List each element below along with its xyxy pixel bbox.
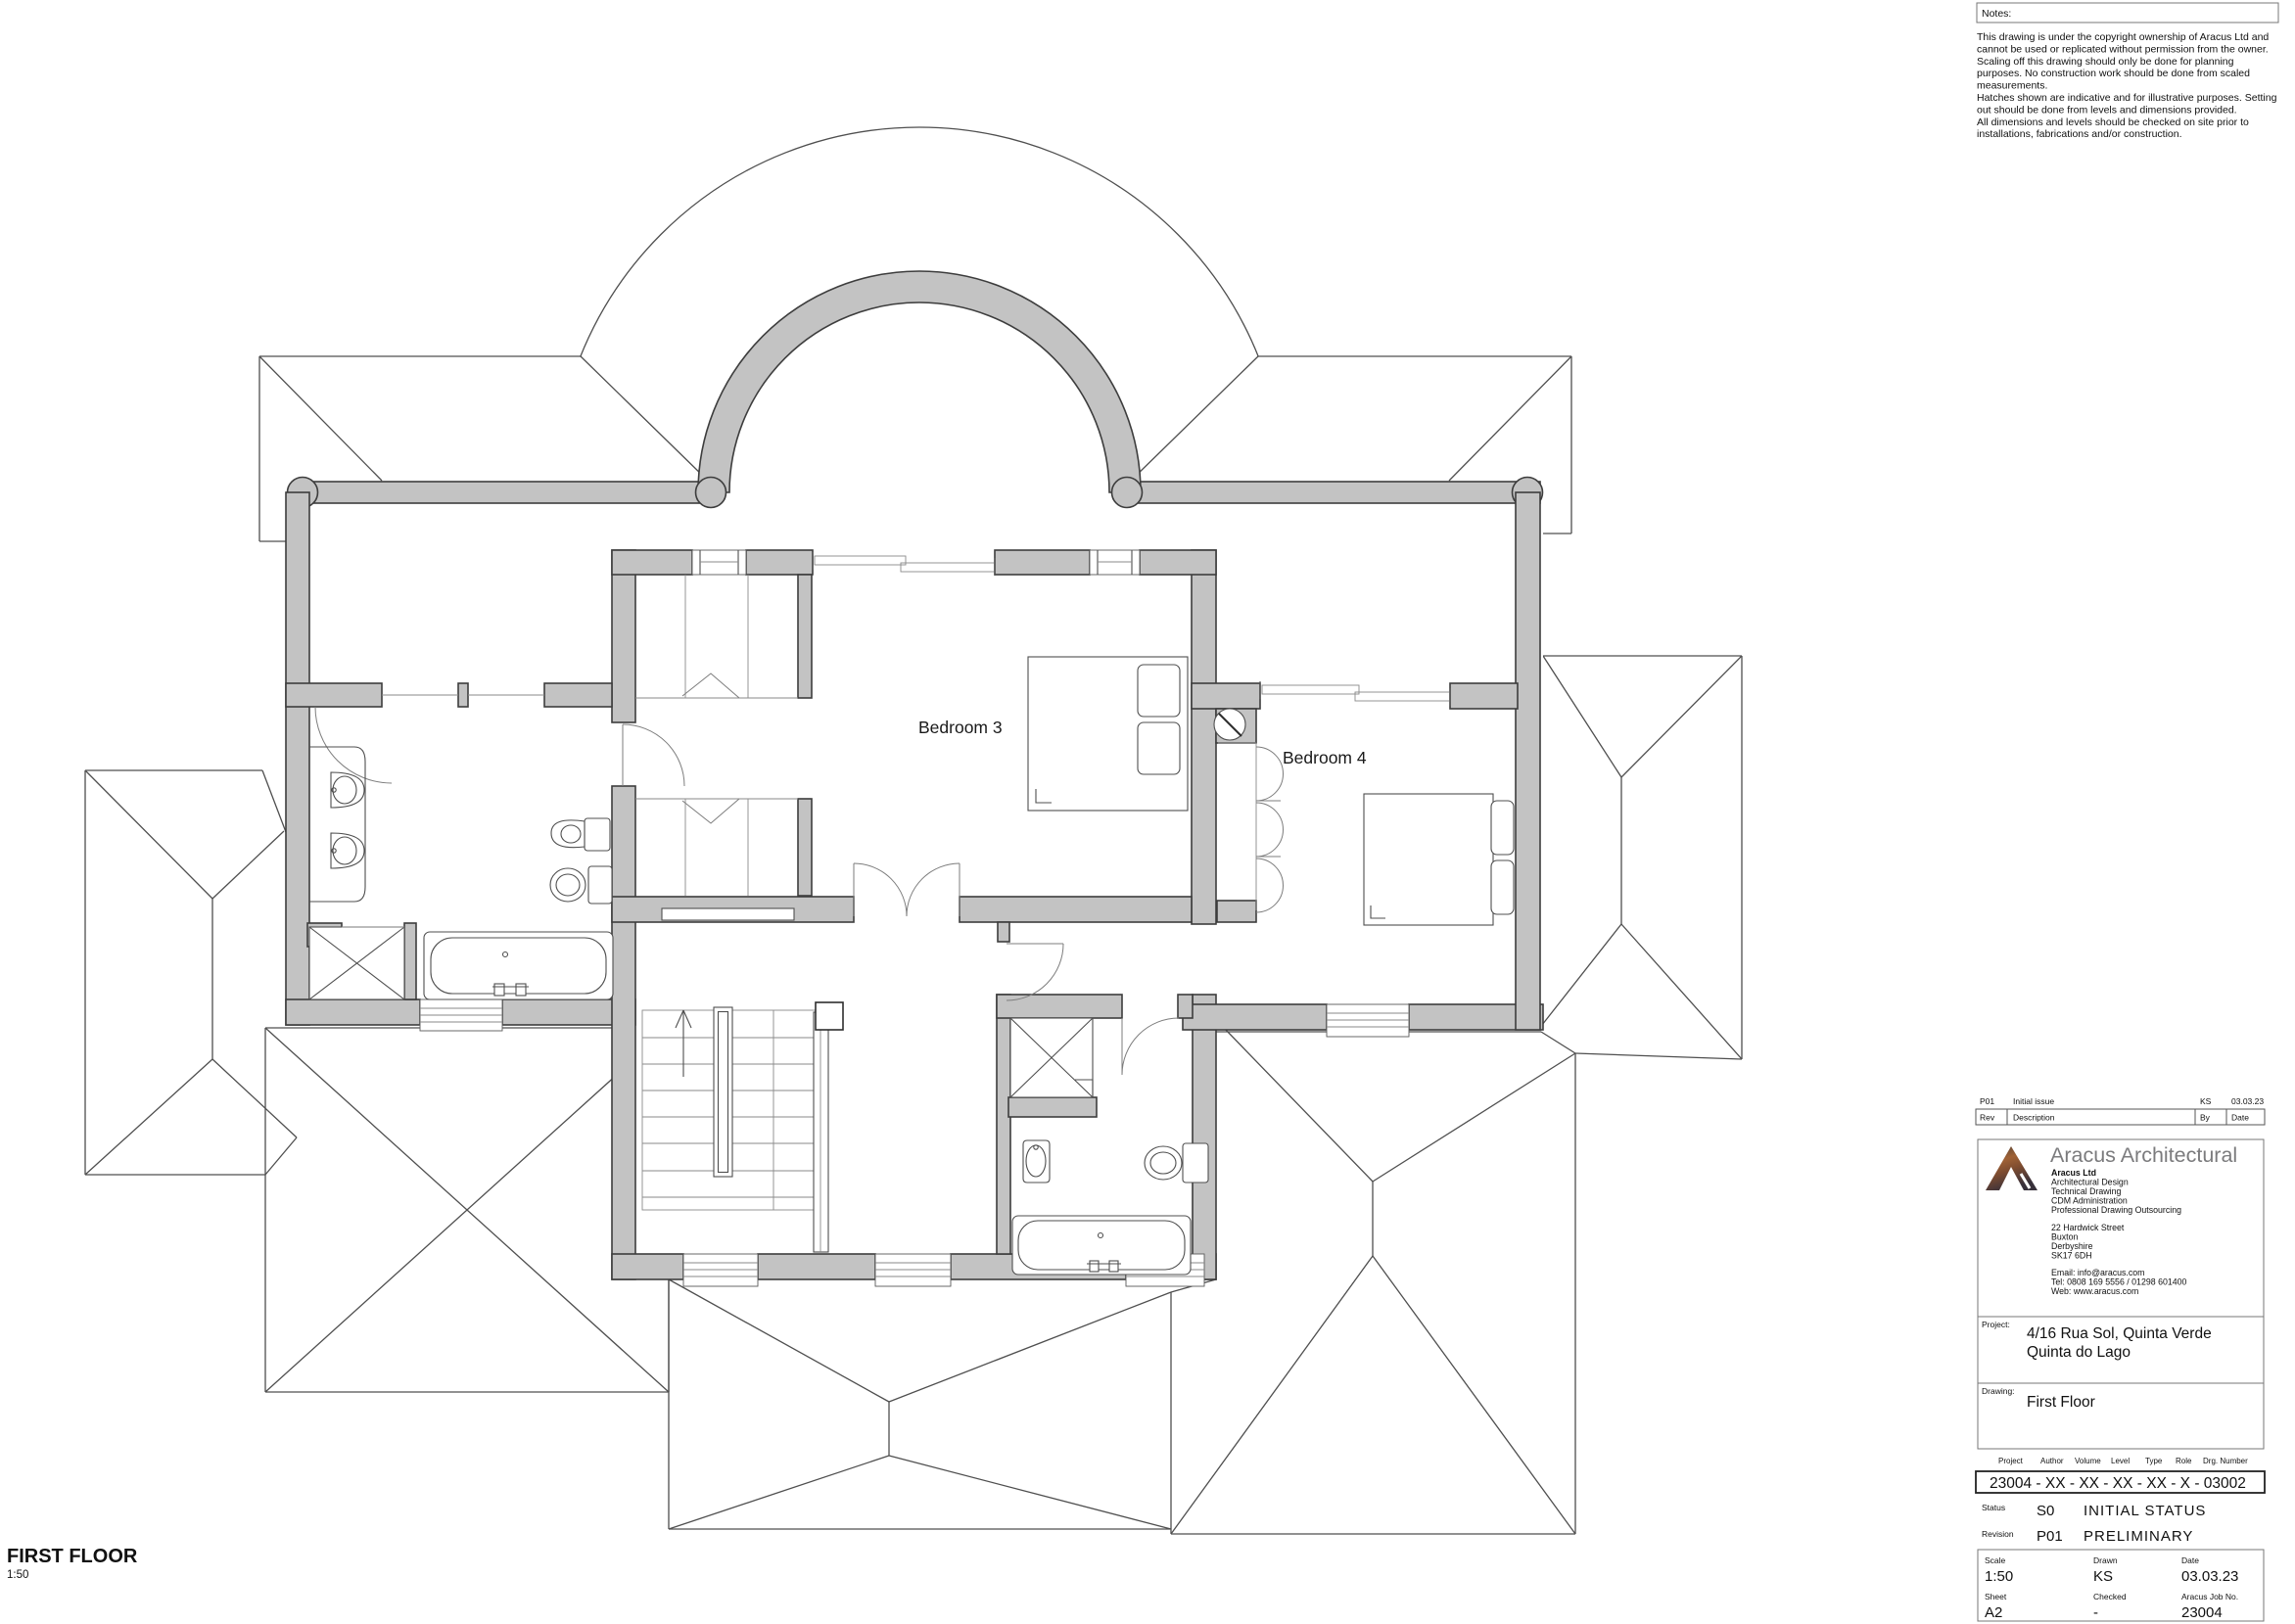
svg-text:Professional Drawing Outsourci: Professional Drawing Outsourcing — [2051, 1205, 2181, 1215]
svg-text:All dimensions and levels shou: All dimensions and levels should be chec… — [1977, 116, 2249, 128]
svg-text:Buxton: Buxton — [2051, 1232, 2078, 1242]
svg-text:S0: S0 — [2037, 1503, 2054, 1519]
svg-text:Technical Drawing: Technical Drawing — [2051, 1186, 2121, 1196]
svg-text:Checked: Checked — [2093, 1592, 2127, 1601]
svg-text:Scale: Scale — [1985, 1555, 2006, 1565]
svg-text:cannot be used or replicated w: cannot be used or replicated without per… — [1977, 43, 2269, 55]
svg-text:measurements.: measurements. — [1977, 80, 2047, 92]
svg-text:KS: KS — [2093, 1568, 2113, 1585]
svg-text:By: By — [2200, 1113, 2211, 1123]
svg-text:purposes. No construction work: purposes. No construction work should be… — [1977, 68, 2250, 79]
svg-text:Notes:: Notes: — [1982, 8, 2011, 20]
svg-text:Quinta do Lago: Quinta do Lago — [2027, 1344, 2131, 1361]
svg-text:Role: Role — [2176, 1457, 2192, 1465]
svg-text:PRELIMINARY: PRELIMINARY — [2084, 1528, 2193, 1545]
svg-text:Aracus Ltd: Aracus Ltd — [2051, 1168, 2096, 1178]
svg-text:Architectural Design: Architectural Design — [2051, 1178, 2129, 1187]
svg-text:Aracus Job No.: Aracus Job No. — [2181, 1592, 2238, 1601]
svg-text:Date: Date — [2231, 1113, 2249, 1123]
svg-text:Level: Level — [2111, 1457, 2130, 1465]
svg-text:1:50: 1:50 — [7, 1569, 28, 1581]
svg-text:03.03.23: 03.03.23 — [2181, 1568, 2238, 1585]
svg-text:Author: Author — [2040, 1457, 2064, 1465]
svg-text:A2: A2 — [1985, 1604, 2002, 1621]
svg-text:First Floor: First Floor — [2027, 1394, 2095, 1411]
svg-text:Drg. Number: Drg. Number — [2203, 1457, 2248, 1465]
svg-text:Bedroom 3: Bedroom 3 — [918, 718, 1003, 737]
svg-text:03.03.23: 03.03.23 — [2231, 1096, 2264, 1106]
svg-text:out should be done from levels: out should be done from levels and dimen… — [1977, 104, 2237, 116]
svg-text:23004 - XX - XX - XX - XX - X: 23004 - XX - XX - XX - XX - X - 03002 — [1990, 1475, 2246, 1492]
svg-text:Drawing:: Drawing: — [1982, 1386, 2015, 1396]
svg-text:Rev: Rev — [1980, 1113, 1995, 1123]
svg-text:SK17 6DH: SK17 6DH — [2051, 1251, 2092, 1261]
svg-text:Tel: 0808 169 5556 / 01298 601: Tel: 0808 169 5556 / 01298 601400 — [2051, 1277, 2187, 1287]
svg-text:23004: 23004 — [2181, 1604, 2223, 1621]
svg-text:22 Hardwick Street: 22 Hardwick Street — [2051, 1223, 2125, 1232]
svg-text:Status: Status — [1982, 1503, 2005, 1512]
svg-text:KS: KS — [2200, 1096, 2212, 1106]
svg-text:installations, fabrications an: installations, fabrications and/or const… — [1977, 128, 2182, 140]
svg-text:Type: Type — [2145, 1457, 2163, 1465]
svg-text:Volume: Volume — [2075, 1457, 2101, 1465]
svg-text:Email: info@aracus.com: Email: info@aracus.com — [2051, 1268, 2144, 1277]
svg-text:P01: P01 — [1980, 1096, 1994, 1106]
svg-text:Initial issue: Initial issue — [2013, 1096, 2054, 1106]
svg-text:4/16 Rua Sol, Quinta Verde: 4/16 Rua Sol, Quinta Verde — [2027, 1325, 2212, 1342]
svg-text:Bedroom 4: Bedroom 4 — [1283, 748, 1367, 767]
svg-text:Derbyshire: Derbyshire — [2051, 1241, 2093, 1251]
svg-text:CDM Administration: CDM Administration — [2051, 1196, 2128, 1206]
svg-text:P01: P01 — [2037, 1528, 2063, 1545]
svg-text:Scaling off this drawing shoul: Scaling off this drawing should only be … — [1977, 56, 2234, 68]
svg-text:Drawn: Drawn — [2093, 1555, 2118, 1565]
svg-text:Date: Date — [2181, 1555, 2199, 1565]
svg-text:Revision: Revision — [1982, 1529, 2014, 1539]
svg-text:FIRST FLOOR: FIRST FLOOR — [7, 1546, 138, 1567]
svg-text:Sheet: Sheet — [1985, 1592, 2007, 1601]
svg-text:Hatches shown are indicative a: Hatches shown are indicative and for ill… — [1977, 92, 2277, 104]
svg-text:This drawing is under the copy: This drawing is under the copyright owne… — [1977, 31, 2269, 43]
svg-text:Description: Description — [2013, 1113, 2055, 1123]
svg-text:Aracus Architectural: Aracus Architectural — [2050, 1143, 2237, 1167]
svg-text:Web: www.aracus.com: Web: www.aracus.com — [2051, 1286, 2138, 1296]
svg-text:Project: Project — [1998, 1457, 2024, 1465]
svg-text:INITIAL STATUS: INITIAL STATUS — [2084, 1503, 2206, 1519]
svg-text:-: - — [2093, 1604, 2098, 1621]
svg-text:1:50: 1:50 — [1985, 1568, 2013, 1585]
svg-text:Project:: Project: — [1982, 1320, 2010, 1329]
